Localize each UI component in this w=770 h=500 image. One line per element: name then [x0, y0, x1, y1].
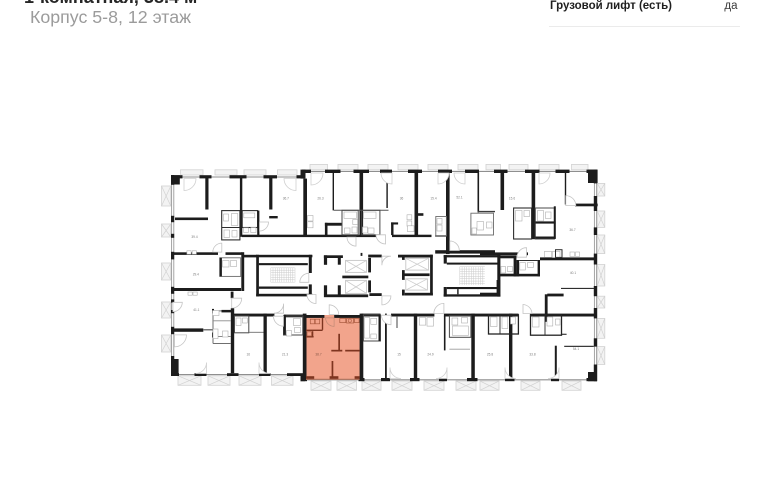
- svg-text:54.1: 54.1: [573, 347, 579, 351]
- svg-text:52.1: 52.1: [456, 196, 462, 200]
- svg-text:33.8: 33.8: [529, 353, 535, 357]
- svg-text:16: 16: [247, 353, 251, 357]
- svg-text:41.1: 41.1: [193, 308, 199, 312]
- svg-text:15.4: 15.4: [430, 197, 436, 201]
- svg-text:15: 15: [397, 353, 401, 357]
- svg-text:38.7: 38.7: [315, 353, 321, 357]
- svg-text:29.4: 29.4: [193, 273, 199, 277]
- svg-text:40.1: 40.1: [570, 271, 576, 275]
- svg-text:36: 36: [400, 197, 404, 201]
- svg-text:24.9: 24.9: [427, 353, 433, 357]
- svg-text:25.8: 25.8: [487, 353, 493, 357]
- svg-text:36.7: 36.7: [569, 228, 575, 232]
- svg-text:26.3: 26.3: [317, 197, 323, 201]
- svg-text:21.3: 21.3: [282, 353, 288, 357]
- svg-text:39.4: 39.4: [191, 235, 197, 239]
- svg-text:15.6: 15.6: [509, 197, 515, 201]
- svg-text:36.7: 36.7: [283, 197, 289, 201]
